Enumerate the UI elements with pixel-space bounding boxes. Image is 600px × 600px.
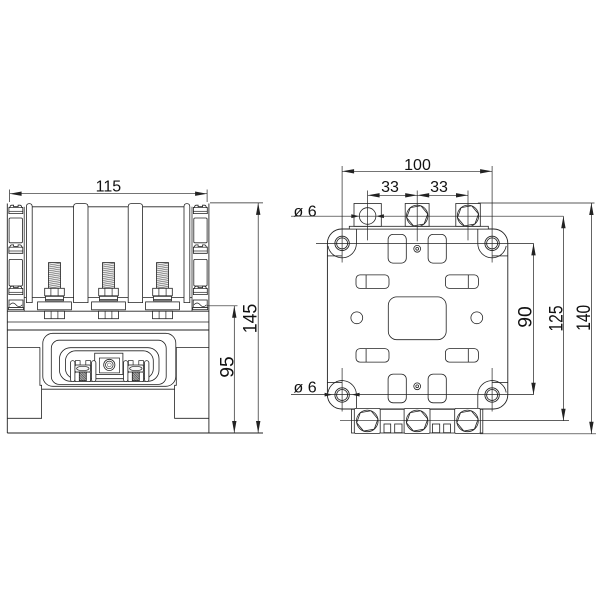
svg-text:100: 100 — [404, 157, 431, 174]
svg-text:140: 140 — [573, 305, 595, 331]
svg-text:145: 145 — [240, 304, 262, 334]
svg-text:90: 90 — [515, 306, 537, 328]
svg-text:ø 6: ø 6 — [294, 379, 317, 396]
svg-text:125: 125 — [546, 305, 568, 331]
svg-text:ø 6: ø 6 — [294, 203, 317, 220]
svg-text:95: 95 — [217, 356, 239, 378]
svg-text:115: 115 — [96, 179, 122, 196]
svg-text:33: 33 — [381, 179, 399, 196]
svg-text:33: 33 — [430, 179, 448, 196]
